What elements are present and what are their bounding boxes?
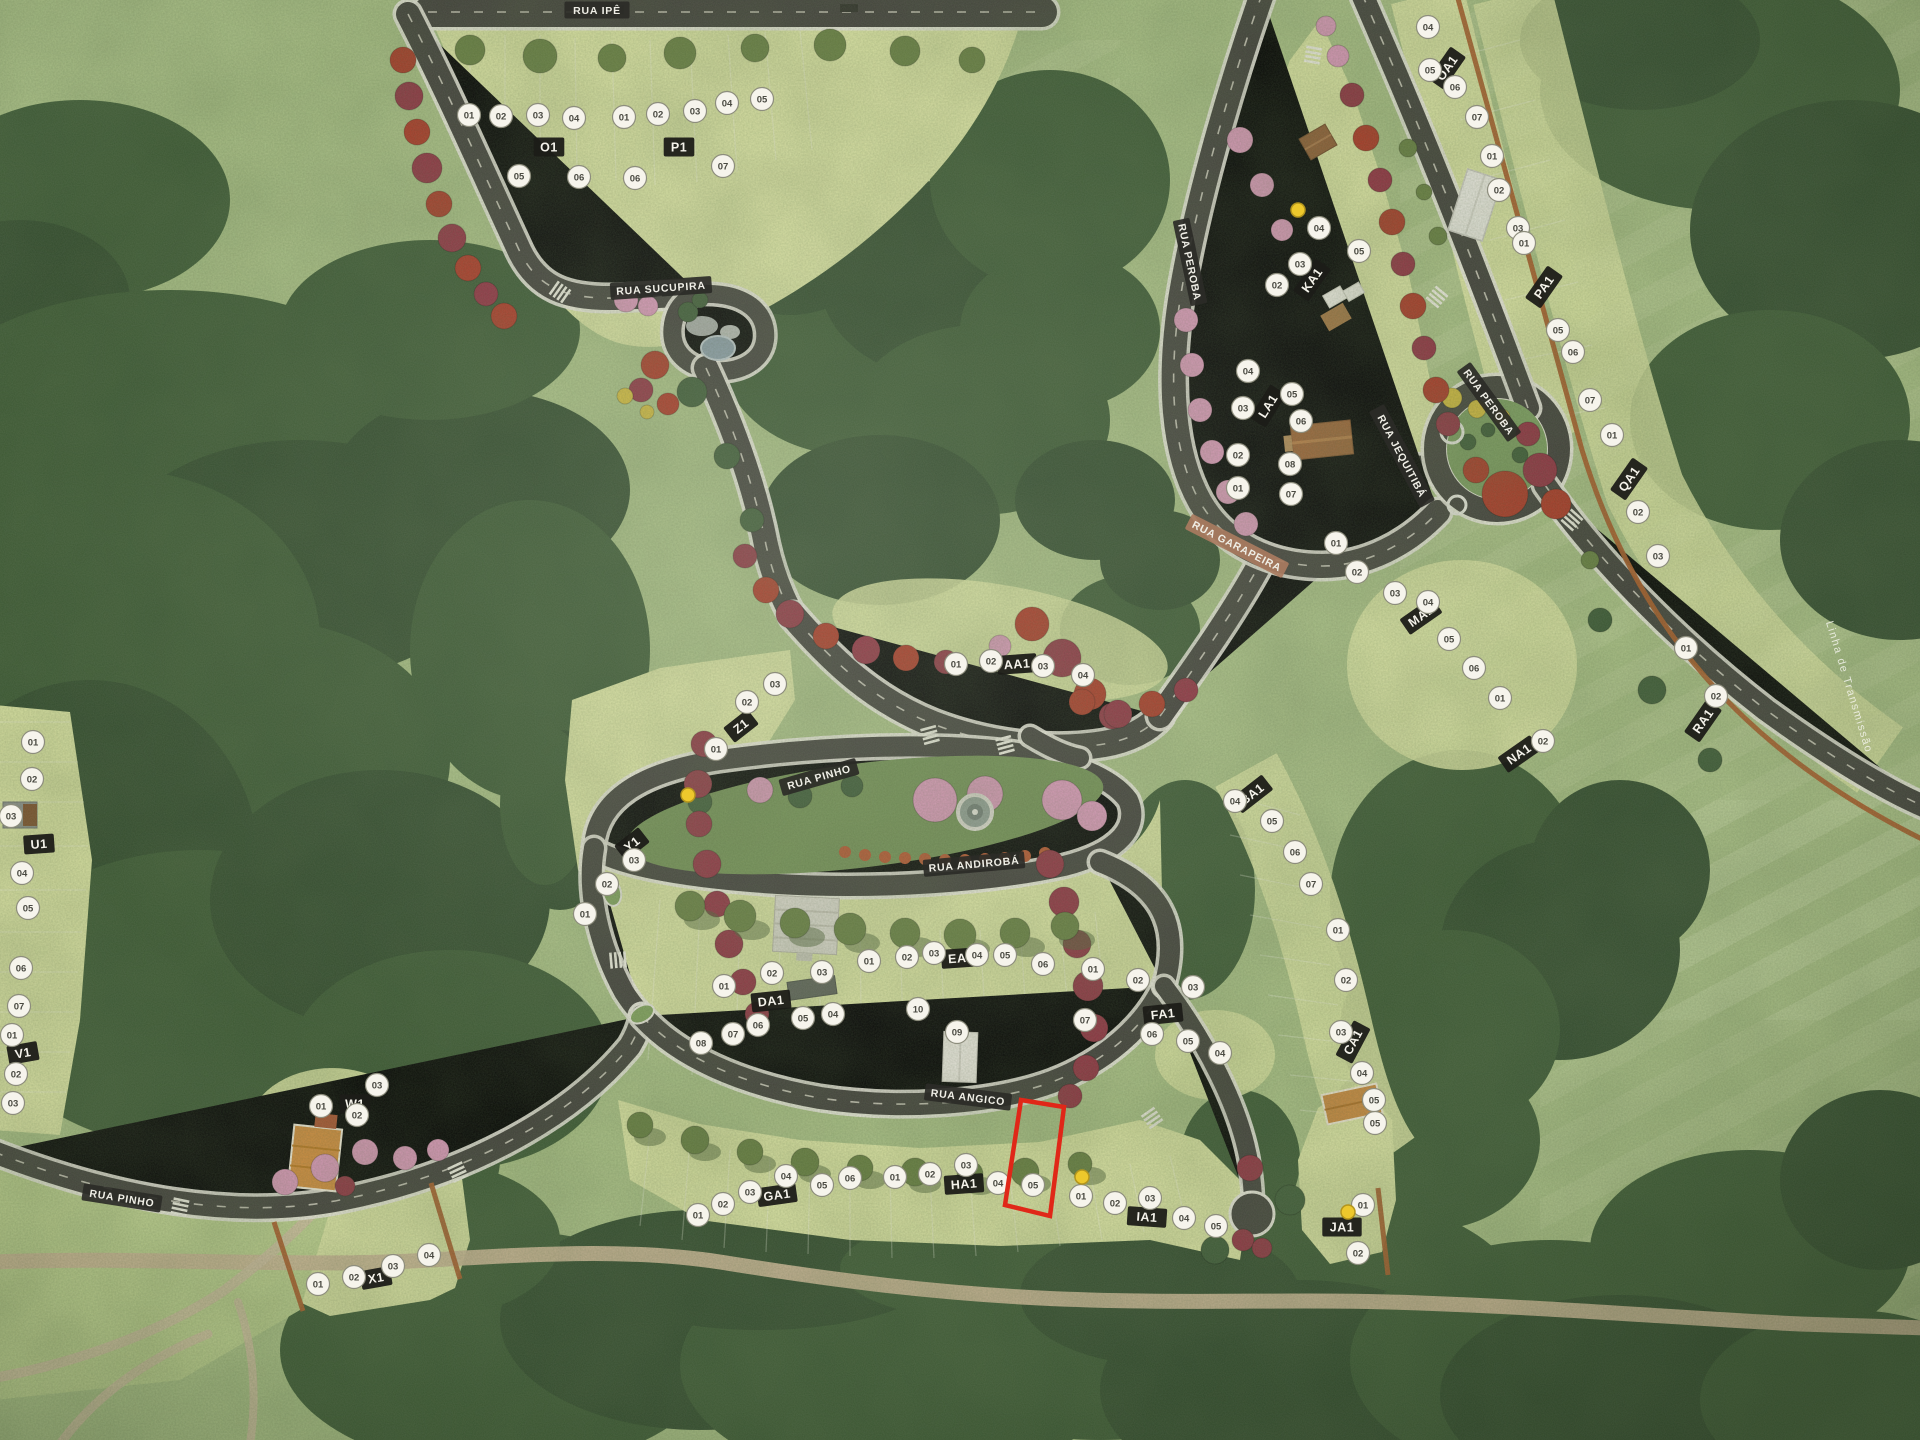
lot-number: 06 (1038, 959, 1049, 970)
lot-marker-U1-02: 02 (21, 768, 44, 791)
lot-marker-MA1-04: 04 (1417, 591, 1440, 614)
lot-number: 02 (1272, 280, 1283, 291)
lot-number: 09 (952, 1027, 963, 1038)
lot-number: 01 (1331, 538, 1342, 549)
lot-marker-Z1-01: 01 (705, 738, 728, 761)
lot-number: 05 (1267, 816, 1278, 827)
lot-number: 02 (925, 1169, 936, 1180)
lot-marker-QA1-03: 03 (1647, 545, 1670, 568)
block-id: X1 (367, 1270, 385, 1287)
lot-number: 04 (781, 1171, 792, 1182)
lot-number: 05 (1425, 65, 1436, 76)
lot-marker-LA1-04: 04 (1237, 360, 1260, 383)
lot-marker-IA1-01: 01 (1070, 1185, 1093, 1208)
block-plaque-P1: P1 (664, 138, 695, 157)
lot-number: 06 (1290, 847, 1301, 858)
lot-marker-BA1-05: 05 (1261, 810, 1284, 833)
lot-marker-O1-05: 05 (508, 165, 531, 188)
vignette (0, 0, 1920, 1440)
lot-number: 03 (745, 1187, 756, 1198)
lot-marker-BA1-07: 07 (1300, 873, 1323, 896)
lot-marker-U1-03: 03 (0, 805, 23, 828)
lot-marker-GA1-06: 06 (839, 1167, 862, 1190)
lot-marker-RA1-01: 01 (1675, 637, 1698, 660)
lot-marker-BA1-06: 06 (1284, 841, 1307, 864)
lot-marker-AA1-02: 02 (980, 650, 1003, 673)
lot-number: 02 (718, 1199, 729, 1210)
lot-number: 02 (1633, 507, 1644, 518)
street-label: RUA IPÊ (564, 2, 629, 19)
lot-marker-U1-07: 07 (8, 995, 31, 1018)
lot-number: 02 (1494, 185, 1505, 196)
lot-marker-FA1-06: 06 (1141, 1023, 1164, 1046)
lot-marker-MA1-06: 06 (1463, 657, 1486, 680)
lot-marker-PA1-07: 07 (1579, 389, 1602, 412)
lot-number: 05 (1444, 634, 1455, 645)
lot-marker-EA1-07: 07 (1074, 1009, 1097, 1032)
lot-marker-OA1-01: 01 (1481, 145, 1504, 168)
lot-marker-O1-02: 02 (490, 105, 513, 128)
lot-number: 03 (372, 1080, 383, 1091)
lot-number: 04 (1215, 1048, 1226, 1059)
lot-number: 04 (972, 950, 983, 961)
lot-marker-GA1-05: 05 (811, 1174, 834, 1197)
lot-marker-DA1-06: 06 (747, 1014, 770, 1037)
lot-marker-GA1-03: 03 (739, 1181, 762, 1204)
lot-number: 03 (1188, 982, 1199, 993)
lot-marker-P1-03: 03 (684, 100, 707, 123)
lot-marker-AA1-01: 01 (945, 653, 968, 676)
lot-marker-CA1-02: 02 (1335, 969, 1358, 992)
block-id: AA1 (1003, 656, 1030, 672)
block-id: HA1 (950, 1176, 977, 1192)
lot-number: 02 (767, 968, 778, 979)
block-plaque-JA1: JA1 (1322, 1218, 1361, 1237)
lot-marker-OA1-04: 04 (1417, 16, 1440, 39)
lot-number: 01 (464, 110, 475, 121)
lot-marker-JA1-05: 05 (1363, 1089, 1386, 1112)
lot-marker-EA1-01: 01 (858, 950, 881, 973)
lot-marker-OA1-07: 07 (1466, 106, 1489, 129)
lot-number: 03 (770, 679, 781, 690)
lot-marker-DA1-08: 08 (690, 1032, 713, 1055)
lot-marker-EA1-09: 09 (946, 1021, 969, 1044)
lot-marker-P1-05: 05 (751, 88, 774, 111)
lot-marker-QA1-01: 01 (1601, 424, 1624, 447)
lot-number: 04 (1357, 1068, 1368, 1079)
lot-marker-EA1-10: 10 (907, 998, 930, 1021)
lot-marker-HA1-03: 03 (955, 1154, 978, 1177)
lot-number: 02 (653, 109, 664, 120)
lot-number: 03 (6, 811, 17, 822)
lot-marker-HA1-05: 05 (1022, 1174, 1045, 1197)
lot-number: 05 (1354, 246, 1365, 257)
lot-number: 06 (753, 1020, 764, 1031)
lot-marker-MA1-03: 03 (1384, 582, 1407, 605)
lot-number: 07 (728, 1029, 739, 1040)
lot-number: 01 (1233, 483, 1244, 494)
lot-marker-IA1-05: 05 (1205, 1215, 1228, 1238)
lot-marker-DA1-07: 07 (722, 1023, 745, 1046)
lot-marker-OA1-06: 06 (1444, 76, 1467, 99)
lot-number: 05 (1369, 1095, 1380, 1106)
lot-marker-DA1-02: 02 (761, 962, 784, 985)
lot-marker-FA1-05: 05 (1177, 1030, 1200, 1053)
lot-number: 05 (1370, 1118, 1381, 1129)
lot-marker-CA1-04: 04 (1351, 1062, 1374, 1085)
lot-number: 03 (629, 855, 640, 866)
lot-marker-O1-01: 01 (458, 104, 481, 127)
lot-number: 06 (1147, 1029, 1158, 1040)
lot-number: 05 (1553, 325, 1564, 336)
lot-number: 02 (986, 656, 997, 667)
lot-marker-KA1-05: 05 (1348, 240, 1371, 263)
lot-number: 06 (1469, 663, 1480, 674)
lot-marker-NA1-02: 02 (1532, 730, 1555, 753)
lot-marker-W1-02: 02 (346, 1104, 369, 1127)
lot-marker-RA1-02: 02 (1705, 685, 1728, 708)
lot-number: 01 (1358, 1200, 1369, 1211)
lot-number: 02 (1711, 691, 1722, 702)
lot-number: 03 (8, 1098, 19, 1109)
lot-marker-Z1-02: 02 (736, 691, 759, 714)
lot-marker-PA1-06: 06 (1562, 341, 1585, 364)
lot-number: 02 (27, 774, 38, 785)
lot-marker-PA1-05: 05 (1547, 319, 1570, 342)
lot-number: 05 (23, 903, 34, 914)
lot-marker-KA1-02: 02 (1266, 274, 1289, 297)
lot-marker-LA1-02: 02 (1227, 444, 1250, 467)
sold-marker (681, 788, 695, 802)
lot-marker-EA1-06: 06 (1032, 953, 1055, 976)
lot-marker-MA1-01: 01 (1325, 532, 1348, 555)
lot-number: 03 (1390, 588, 1401, 599)
lot-marker-GA1-02: 02 (712, 1193, 735, 1216)
lot-number: 03 (1336, 1027, 1347, 1038)
lot-number: 07 (718, 161, 729, 172)
lot-marker-P1-07: 07 (712, 155, 735, 178)
lot-number: 01 (719, 981, 730, 992)
block-id: FA1 (1150, 1006, 1176, 1022)
block-id: V1 (14, 1045, 32, 1062)
lot-number: 06 (1450, 82, 1461, 93)
lot-number: 02 (1133, 975, 1144, 986)
lot-number: 04 (1423, 22, 1434, 33)
lot-marker-EA1-02: 02 (896, 946, 919, 969)
street-name: RUA IPÊ (573, 4, 621, 17)
lot-marker-IA1-04: 04 (1173, 1207, 1196, 1230)
lot-number: 02 (1353, 1248, 1364, 1259)
lot-number: 05 (817, 1180, 828, 1191)
lot-marker-MA1-02: 02 (1346, 561, 1369, 584)
model-photo: RUA IPÊRUA SUCUPIRARUA PEROBARUA PEROBAR… (0, 0, 1920, 1440)
lot-number: 01 (316, 1101, 327, 1112)
lot-marker-AA1-04: 04 (1072, 664, 1095, 687)
lot-number: 01 (890, 1172, 901, 1183)
lot-number: 02 (352, 1110, 363, 1121)
lot-marker-FA1-02: 02 (1127, 969, 1150, 992)
lot-marker-DA1-04: 04 (822, 1003, 845, 1026)
lot-number: 06 (630, 173, 641, 184)
lot-number: 03 (929, 948, 940, 959)
lot-marker-U1-05: 05 (17, 897, 40, 920)
lot-number: 04 (993, 1178, 1004, 1189)
lot-marker-P1-06: 06 (624, 167, 647, 190)
lot-number: 04 (1423, 597, 1434, 608)
lot-number: 06 (16, 963, 27, 974)
lot-number: 03 (1038, 661, 1049, 672)
lot-marker-AA1-03: 03 (1032, 655, 1055, 678)
lot-number: 02 (1341, 975, 1352, 986)
lot-marker-W1-03: 03 (366, 1074, 389, 1097)
lot-marker-GA1-04: 04 (775, 1165, 798, 1188)
lot-number: 05 (1211, 1221, 1222, 1232)
lot-number: 04 (1243, 366, 1254, 377)
lot-number: 01 (619, 112, 630, 123)
lot-marker-X1-02: 02 (343, 1266, 366, 1289)
lot-number: 04 (1078, 670, 1089, 681)
lot-number: 03 (388, 1261, 399, 1272)
lot-number: 02 (902, 952, 913, 963)
lot-marker-JA1-02: 02 (1347, 1242, 1370, 1265)
lot-marker-DA1-01: 01 (713, 975, 736, 998)
lot-number: 04 (1314, 223, 1325, 234)
lot-number: 04 (722, 98, 733, 109)
lot-marker-NA1-01: 01 (1489, 687, 1512, 710)
lot-marker-U1-01: 01 (22, 731, 45, 754)
lot-marker-CA1-01: 01 (1327, 919, 1350, 942)
lot-number: 03 (690, 106, 701, 117)
lot-number: 05 (1028, 1180, 1039, 1191)
lot-number: 01 (1076, 1191, 1087, 1202)
lot-number: 02 (602, 879, 613, 890)
lot-number: 01 (1333, 925, 1344, 936)
lot-number: 01 (580, 909, 591, 920)
lot-marker-X1-01: 01 (307, 1273, 330, 1296)
lot-marker-LA1-07: 07 (1280, 483, 1303, 506)
lot-marker-U1-04: 04 (11, 862, 34, 885)
lot-marker-Y1-02: 02 (596, 873, 619, 896)
lot-number: 07 (1472, 112, 1483, 123)
lot-marker-CA1-03: 03 (1330, 1021, 1353, 1044)
lot-number: 02 (1110, 1198, 1121, 1209)
lot-number: 02 (1538, 736, 1549, 747)
lot-number: 01 (1607, 430, 1618, 441)
lot-marker-HA1-02: 02 (919, 1163, 942, 1186)
lot-number: 05 (757, 94, 768, 105)
lot-marker-QA1-02: 02 (1627, 501, 1650, 524)
lot-number: 01 (693, 1210, 704, 1221)
lot-marker-W1-01: 01 (310, 1095, 333, 1118)
lot-marker-LA1-08: 08 (1279, 453, 1302, 476)
lot-marker-OA1-02: 02 (1488, 179, 1511, 202)
lot-marker-HA1-01: 01 (884, 1166, 907, 1189)
lot-number: 06 (845, 1173, 856, 1184)
lot-number: 02 (742, 697, 753, 708)
lot-number: 01 (951, 659, 962, 670)
lot-marker-BA1-04: 04 (1224, 790, 1247, 813)
lot-marker-V1-03: 03 (2, 1092, 25, 1115)
block-id: DA1 (757, 993, 785, 1010)
lot-number: 01 (711, 744, 722, 755)
lot-number: 10 (913, 1004, 924, 1015)
lot-number: 03 (533, 110, 544, 121)
lot-number: 04 (1230, 796, 1241, 807)
lot-number: 05 (1287, 389, 1298, 400)
lot-number: 06 (1296, 416, 1307, 427)
sold-marker (1075, 1170, 1089, 1184)
lot-number: 03 (1295, 259, 1306, 270)
lot-number: 07 (14, 1001, 25, 1012)
lot-number: 05 (1000, 950, 1011, 961)
lot-number: 05 (798, 1013, 809, 1024)
lot-marker-KA1-03: 03 (1289, 253, 1312, 276)
lot-marker-P1-04: 04 (716, 92, 739, 115)
lot-number: 08 (1285, 459, 1296, 470)
lot-marker-V1-02: 02 (5, 1063, 28, 1086)
lot-number: 01 (864, 956, 875, 967)
lot-number: 01 (7, 1030, 18, 1041)
lot-number: 01 (28, 737, 39, 748)
lot-marker-O1-04: 04 (563, 107, 586, 130)
lot-marker-Y1-01: 01 (574, 903, 597, 926)
lot-marker-DA1-05: 05 (792, 1007, 815, 1030)
lot-number: 07 (1585, 395, 1596, 406)
lot-marker-PA1-01: 01 (1513, 232, 1536, 255)
lot-number: 04 (17, 868, 28, 879)
lot-number: 07 (1306, 879, 1317, 890)
lot-number: 05 (514, 171, 525, 182)
lot-number: 07 (1080, 1015, 1091, 1026)
lot-number: 06 (1568, 347, 1579, 358)
lot-marker-LA1-05: 05 (1281, 383, 1304, 406)
lot-marker-FA1-01: 01 (1082, 958, 1105, 981)
sold-marker (1291, 203, 1305, 217)
lot-number: 05 (1183, 1036, 1194, 1047)
lot-marker-FA1-03: 03 (1182, 976, 1205, 999)
lot-marker-MA1-05: 05 (1438, 628, 1461, 651)
lot-number: 03 (1653, 551, 1664, 562)
lot-marker-O1-03: 03 (527, 104, 550, 127)
lot-number: 04 (569, 113, 580, 124)
lot-marker-EA1-05: 05 (994, 944, 1017, 967)
lot-marker-CA1-05: 05 (1364, 1112, 1387, 1135)
lot-number: 04 (828, 1009, 839, 1020)
lot-number: 02 (496, 111, 507, 122)
lot-number: 08 (696, 1038, 707, 1049)
block-id: IA1 (1136, 1210, 1158, 1225)
lot-marker-LA1-03: 03 (1232, 397, 1255, 420)
lot-marker-IA1-03: 03 (1139, 1187, 1162, 1210)
lot-number: 03 (817, 967, 828, 978)
block-id: U1 (30, 837, 48, 852)
block-id: JA1 (1330, 1220, 1354, 1234)
lot-marker-U1-06: 06 (10, 957, 33, 980)
lot-marker-EA1-03: 03 (923, 942, 946, 965)
lot-marker-LA1-01: 01 (1227, 477, 1250, 500)
lot-marker-GA1-01: 01 (687, 1204, 710, 1227)
block-plaque-O1: O1 (534, 138, 565, 157)
lot-marker-P1-02: 02 (647, 103, 670, 126)
lot-marker-X1-03: 03 (382, 1255, 405, 1278)
lot-number: 04 (1179, 1213, 1190, 1224)
block-id: O1 (540, 140, 558, 154)
lot-marker-KA1-04: 04 (1308, 217, 1331, 240)
lot-marker-IA1-02: 02 (1104, 1192, 1127, 1215)
block-id: P1 (671, 140, 687, 154)
lot-marker-OA1-05: 05 (1419, 59, 1442, 82)
lot-number: 03 (961, 1160, 972, 1171)
lot-number: 01 (1519, 238, 1530, 249)
lot-number: 01 (1487, 151, 1498, 162)
lot-number: 03 (1145, 1193, 1156, 1204)
lot-number: 01 (1088, 964, 1099, 975)
lot-number: 01 (1495, 693, 1506, 704)
lot-marker-LA1-06: 06 (1290, 410, 1313, 433)
lot-number: 06 (574, 172, 585, 183)
lot-number: 02 (349, 1272, 360, 1283)
block-plaque-U1: U1 (23, 833, 55, 854)
lot-marker-P1-01: 01 (613, 106, 636, 129)
lot-number: 04 (424, 1250, 435, 1261)
lot-marker-V1-01: 01 (1, 1024, 24, 1047)
lot-marker-FA1-04: 04 (1209, 1042, 1232, 1065)
lot-marker-Y1-03: 03 (623, 849, 646, 872)
lot-number: 02 (11, 1069, 22, 1080)
lot-number: 07 (1286, 489, 1297, 500)
sold-marker (1341, 1205, 1355, 1219)
lot-number: 02 (1352, 567, 1363, 578)
lot-marker-X1-04: 04 (418, 1244, 441, 1267)
lot-marker-EA1-04: 04 (966, 944, 989, 967)
lot-marker-Z1-03: 03 (764, 673, 787, 696)
lot-marker-DA1-03: 03 (811, 961, 834, 984)
lot-marker-O1-06: 06 (568, 166, 591, 189)
lot-number: 01 (1681, 643, 1692, 654)
lot-number: 01 (313, 1279, 324, 1290)
lot-number: 03 (1238, 403, 1249, 414)
lot-number: 02 (1233, 450, 1244, 461)
